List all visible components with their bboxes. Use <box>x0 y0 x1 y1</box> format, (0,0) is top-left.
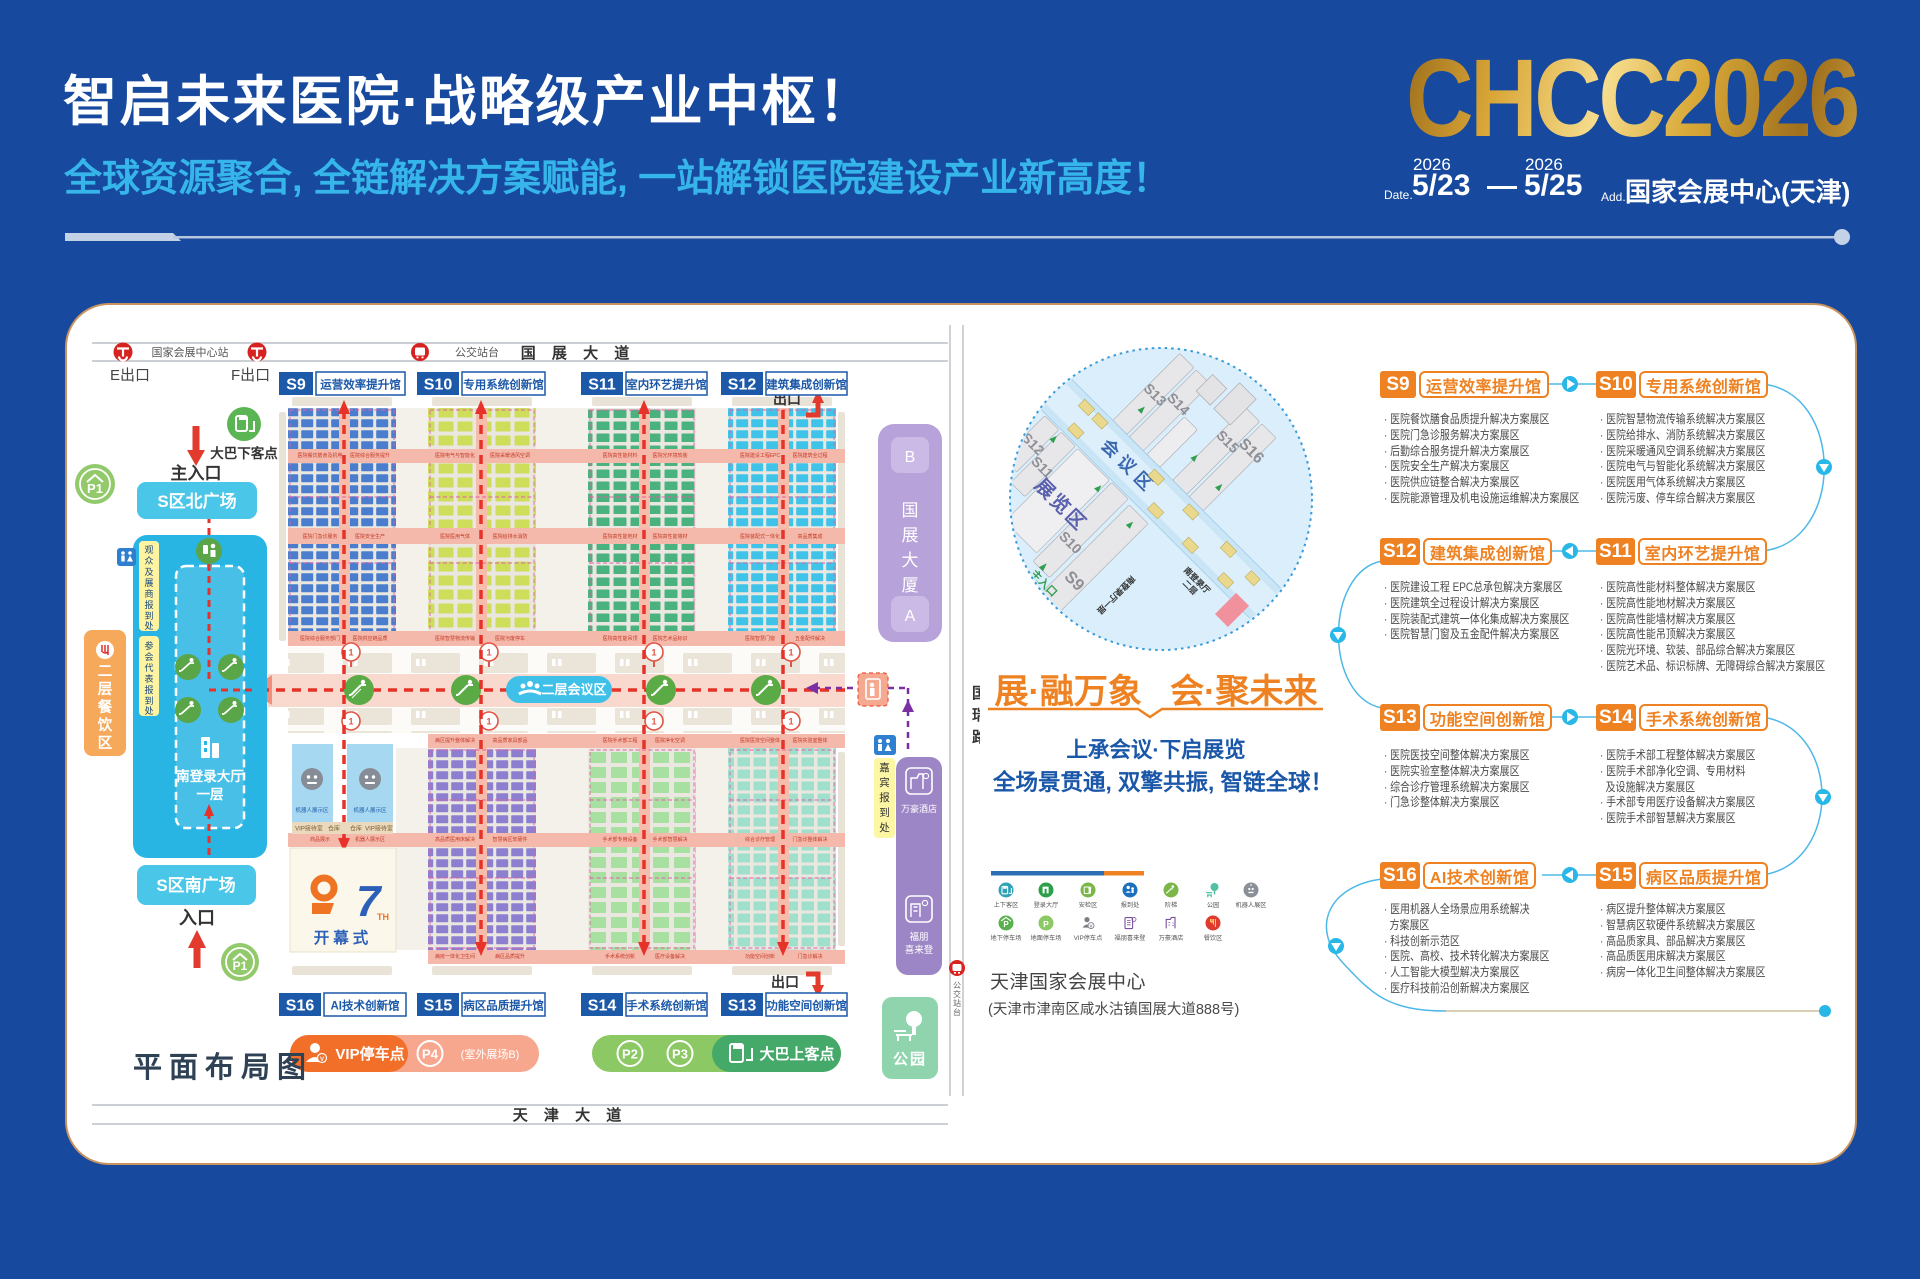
svg-text:A: A <box>905 608 916 625</box>
svg-text:F出口: F出口 <box>231 367 270 384</box>
svg-text:商品展示: 商品展示 <box>310 836 330 843</box>
svg-text:TH: TH <box>377 912 389 922</box>
svg-text:餐: 餐 <box>98 698 113 716</box>
svg-text:1: 1 <box>486 648 491 658</box>
svg-text:登录大厅: 登录大厅 <box>1034 901 1059 909</box>
svg-text:S区北广场: S区北广场 <box>157 491 236 511</box>
svg-text:福朋: 福朋 <box>909 931 928 943</box>
svg-text:厦: 厦 <box>902 576 919 595</box>
svg-text:展: 展 <box>902 526 919 545</box>
svg-text:手术系统创新馆: 手术系统创新馆 <box>626 999 707 1013</box>
svg-text:S14: S14 <box>588 998 617 1015</box>
svg-text:入口: 入口 <box>179 908 215 928</box>
svg-text:站: 站 <box>953 998 961 1008</box>
svg-text:机器人展区: 机器人展区 <box>1236 901 1267 909</box>
svg-text:医院高性能地材: 医院高性能地材 <box>602 533 637 540</box>
svg-text:大巴下客点: 大巴下客点 <box>210 445 278 461</box>
svg-text:高品质家具部品: 高品质家具部品 <box>492 737 527 744</box>
svg-text:表: 表 <box>144 673 153 684</box>
svg-text:S10: S10 <box>424 377 453 394</box>
svg-text:P: P <box>1043 919 1049 929</box>
svg-text:万豪酒店: 万豪酒店 <box>901 803 937 814</box>
svg-text:天 津 大 道: 天 津 大 道 <box>513 1106 628 1124</box>
svg-text:公: 公 <box>953 981 961 990</box>
svg-text:交: 交 <box>953 989 961 999</box>
svg-text:1: 1 <box>788 648 793 658</box>
svg-text:众: 众 <box>144 556 153 566</box>
svg-text:报: 报 <box>144 599 153 610</box>
svg-text:V: V <box>320 1057 324 1063</box>
svg-text:地面停车场: 地面停车场 <box>1031 934 1062 942</box>
svg-text:开幕式: 开幕式 <box>314 928 373 947</box>
svg-text:1: 1 <box>348 717 353 727</box>
svg-text:会: 会 <box>144 651 153 662</box>
svg-text:代: 代 <box>144 663 153 673</box>
svg-text:餐饮区: 餐饮区 <box>1204 934 1223 942</box>
svg-text:宾: 宾 <box>879 776 890 789</box>
svg-text:安检区: 安检区 <box>1079 901 1098 909</box>
svg-text:展: 展 <box>144 578 153 588</box>
svg-text:区: 区 <box>98 735 113 752</box>
svg-text:医院电气与智能化: 医院电气与智能化 <box>435 452 475 459</box>
svg-text:医院建设工程EPC: 医院建设工程EPC <box>740 452 781 459</box>
svg-text:手术部专用设备: 手术部专用设备 <box>602 836 637 843</box>
svg-text:高品质集成: 高品质集成 <box>797 533 822 540</box>
svg-text:医院艺术品标识: 医院艺术品标识 <box>652 635 687 642</box>
svg-text:上下客区: 上下客区 <box>994 901 1019 909</box>
svg-text:E出口: E出口 <box>110 367 150 384</box>
svg-text:南登录大厅: 南登录大厅 <box>176 768 244 784</box>
svg-text:机器人展示区: 机器人展示区 <box>353 806 387 814</box>
svg-text:二: 二 <box>98 664 113 680</box>
svg-text:医院门急诊服务: 医院门急诊服务 <box>302 533 337 540</box>
svg-text:主入口: 主入口 <box>171 463 222 483</box>
svg-text:嘉: 嘉 <box>879 761 890 774</box>
svg-text:医院高性能材料: 医院高性能材料 <box>602 452 637 459</box>
svg-text:仓库: 仓库 <box>350 825 362 833</box>
svg-text:到: 到 <box>144 695 153 706</box>
svg-text:1: 1 <box>348 648 353 658</box>
svg-text:运营效率提升馆: 运营效率提升馆 <box>320 378 401 392</box>
svg-text:福朋喜来登: 福朋喜来登 <box>1115 934 1147 942</box>
svg-text:医院高性能吊顶: 医院高性能吊顶 <box>602 635 637 642</box>
svg-text:机器人展示区: 机器人展示区 <box>355 836 385 843</box>
svg-text:1: 1 <box>788 717 793 727</box>
svg-text:1: 1 <box>651 648 656 658</box>
svg-text:S区南广场: S区南广场 <box>156 875 235 895</box>
svg-text:P4: P4 <box>422 1047 439 1062</box>
svg-text:公园: 公园 <box>893 1051 927 1068</box>
svg-text:门急诊解决: 门急诊解决 <box>797 953 822 960</box>
svg-text:病区提升整体解决: 病区提升整体解决 <box>435 737 475 744</box>
svg-text:(室外展场B): (室外展场B) <box>461 1047 520 1061</box>
svg-text:一层: 一层 <box>197 787 224 802</box>
svg-text:病区品质提升: 病区品质提升 <box>495 953 525 960</box>
svg-text:报到处: 报到处 <box>1121 901 1140 909</box>
svg-text:公园: 公园 <box>1207 902 1219 909</box>
svg-text:S16: S16 <box>286 998 315 1015</box>
svg-text:地下停车场: 地下停车场 <box>991 934 1022 942</box>
svg-text:医院光环境软装: 医院光环境软装 <box>652 452 687 459</box>
svg-text:VIP接待室: VIP接待室 <box>365 825 393 833</box>
svg-text:P: P <box>1003 920 1009 929</box>
svg-text:参: 参 <box>144 640 153 651</box>
svg-text:处: 处 <box>144 620 153 631</box>
svg-text:AI技术创新馆: AI技术创新馆 <box>331 999 400 1013</box>
svg-text:国: 国 <box>902 501 919 520</box>
svg-text:综合诊疗管理: 综合诊疗管理 <box>745 836 775 843</box>
svg-text:医院综合服务部门: 医院综合服务部门 <box>300 635 340 642</box>
svg-text:处: 处 <box>879 822 890 834</box>
svg-text:功能空间创新: 功能空间创新 <box>745 953 775 960</box>
svg-text:专用系统创新馆: 专用系统创新馆 <box>463 378 544 392</box>
svg-text:VIP停车点: VIP停车点 <box>335 1045 404 1063</box>
svg-text:公交站台: 公交站台 <box>455 345 499 359</box>
svg-text:及: 及 <box>144 567 153 577</box>
svg-text:手术部智慧解决: 手术部智慧解决 <box>652 836 687 843</box>
svg-text:S13: S13 <box>728 998 757 1015</box>
svg-text:门急诊整体解决: 门急诊整体解决 <box>792 836 827 843</box>
svg-text:S12: S12 <box>728 377 757 394</box>
svg-text:机器人展示区: 机器人展示区 <box>295 806 329 814</box>
svg-text:VIP接待室: VIP接待室 <box>295 825 323 833</box>
svg-text:室内环艺提升馆: 室内环艺提升馆 <box>626 378 707 392</box>
svg-text:饮: 饮 <box>97 716 113 734</box>
svg-text:国家会展中心站: 国家会展中心站 <box>152 345 229 359</box>
svg-text:国 展 大 道: 国 展 大 道 <box>521 344 636 362</box>
svg-text:医院手术部工程: 医院手术部工程 <box>602 737 637 744</box>
svg-text:智慧病区软硬件: 智慧病区软硬件 <box>492 836 527 843</box>
svg-text:处: 处 <box>144 705 153 716</box>
svg-text:医院安全生产: 医院安全生产 <box>355 533 385 540</box>
svg-text:医院智慧物流传输: 医院智慧物流传输 <box>435 635 475 642</box>
svg-text:大: 大 <box>902 551 919 570</box>
svg-text:大巴上客点: 大巴上客点 <box>759 1045 834 1063</box>
svg-text:医院医用气体: 医院医用气体 <box>440 533 470 540</box>
svg-text:层: 层 <box>98 681 113 698</box>
svg-text:阶梯: 阶梯 <box>1165 901 1177 909</box>
svg-text:到: 到 <box>879 807 890 819</box>
svg-text:功能空间创新馆: 功能空间创新馆 <box>766 999 847 1013</box>
svg-text:医院净化空调: 医院净化空调 <box>655 737 685 744</box>
svg-text:医院实验室整体: 医院实验室整体 <box>792 737 827 744</box>
svg-text:报: 报 <box>879 791 890 804</box>
svg-text:手术系统创新: 手术系统创新 <box>605 953 635 960</box>
svg-text:P1: P1 <box>87 481 103 496</box>
svg-text:国: 国 <box>972 685 980 702</box>
svg-text:S9: S9 <box>286 377 306 394</box>
svg-text:二层会议区: 二层会议区 <box>541 682 606 697</box>
svg-text:平面布局图: 平面布局图 <box>133 1051 313 1084</box>
svg-text:五金配件解决: 五金配件解决 <box>795 635 825 642</box>
svg-text:S11: S11 <box>588 377 616 394</box>
svg-text:V: V <box>1090 923 1093 928</box>
svg-text:医院污废停车: 医院污废停车 <box>495 635 525 642</box>
svg-text:医院装配式一体化: 医院装配式一体化 <box>740 533 780 540</box>
svg-text:高品质医用床解决: 高品质医用床解决 <box>435 836 475 843</box>
svg-text:建筑集成创新馆: 建筑集成创新馆 <box>766 378 847 392</box>
svg-text:1: 1 <box>651 717 656 727</box>
svg-text:医院综合服务提升: 医院综合服务提升 <box>350 452 390 459</box>
svg-text:医院建筑全过程: 医院建筑全过程 <box>792 452 827 459</box>
svg-text:报: 报 <box>144 684 153 695</box>
svg-text:医院餐饮膳食及机电: 医院餐饮膳食及机电 <box>297 452 342 459</box>
svg-text:万豪酒店: 万豪酒店 <box>1159 934 1184 942</box>
svg-text:病区品质提升馆: 病区品质提升馆 <box>463 999 544 1013</box>
svg-text:路: 路 <box>972 728 980 746</box>
svg-text:B: B <box>905 449 916 466</box>
svg-text:P3: P3 <box>672 1047 688 1062</box>
svg-text:S15: S15 <box>424 998 453 1015</box>
svg-text:医院供应链品质: 医院供应链品质 <box>352 635 387 642</box>
svg-text:医疗设备解决: 医疗设备解决 <box>655 953 685 960</box>
svg-text:台: 台 <box>953 1007 961 1017</box>
svg-text:出口: 出口 <box>771 974 799 990</box>
svg-text:VIP停车点: VIP停车点 <box>1074 934 1103 942</box>
svg-text:到: 到 <box>144 610 153 621</box>
svg-text:医院医技空间整体: 医院医技空间整体 <box>740 737 780 744</box>
svg-text:医院高性能墙材: 医院高性能墙材 <box>652 533 687 540</box>
svg-text:1: 1 <box>486 717 491 727</box>
svg-text:病房一体化卫生间: 病房一体化卫生间 <box>435 953 475 960</box>
svg-text:仓库: 仓库 <box>328 825 340 833</box>
svg-text:P1: P1 <box>233 959 248 973</box>
svg-text:医院给排水消防: 医院给排水消防 <box>492 533 527 540</box>
svg-text:P2: P2 <box>622 1047 638 1062</box>
svg-text:商: 商 <box>144 588 153 599</box>
svg-text:观: 观 <box>144 545 153 555</box>
svg-text:喜来登: 喜来登 <box>905 944 934 956</box>
svg-text:瑞: 瑞 <box>972 706 980 724</box>
svg-text:医院采暖通风空调: 医院采暖通风空调 <box>490 452 530 459</box>
svg-text:医院智慧门窗: 医院智慧门窗 <box>745 635 775 642</box>
